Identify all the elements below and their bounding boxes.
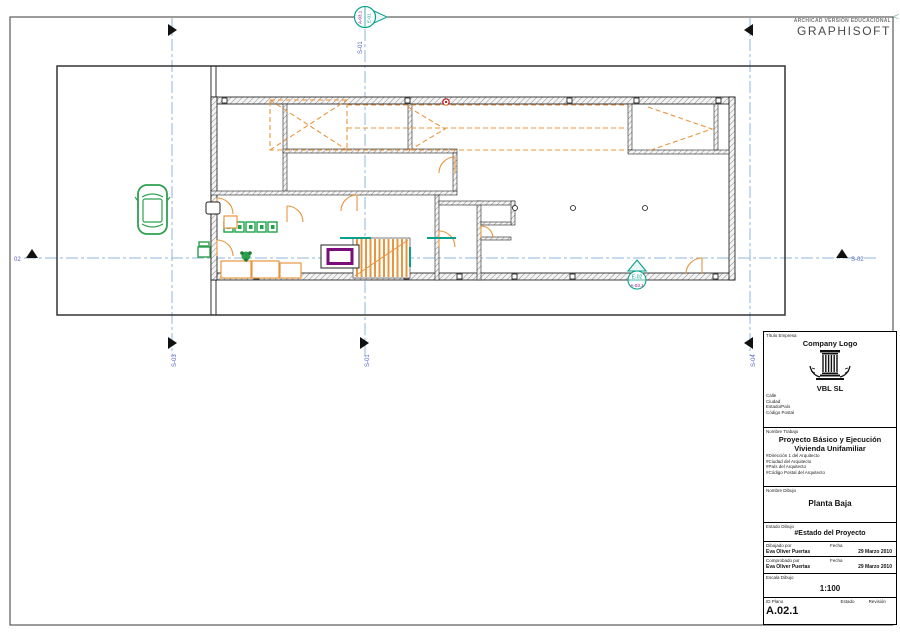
wall-exterior-left[interactable] (211, 97, 217, 280)
section-label-s04: S-04 (751, 354, 757, 367)
checked-date-value: 29 Marzo 2010 (830, 564, 894, 570)
drawn-date-value: 29 Marzo 2010 (830, 549, 894, 555)
collapse-arrow-icon[interactable]: < (893, 12, 899, 23)
door-arc[interactable] (439, 157, 455, 173)
section-arrow-icon[interactable] (744, 24, 753, 36)
drawing-id-section: ID Plano A.02.1 Estado Revisión (764, 598, 896, 624)
elevation-marker-top[interactable]: A-03.1 E-01 (355, 7, 388, 28)
alarm-symbol-icon[interactable] (443, 99, 449, 105)
section-label-s03: S-03 (172, 354, 178, 367)
section-arrow-icon[interactable] (836, 249, 848, 258)
drawn-by-value: Eva Oliver Puertas (766, 549, 830, 555)
section-arrow-icon[interactable] (26, 249, 38, 258)
project-subtitle: Vivienda Unifamiliar (766, 444, 894, 453)
sink-icon[interactable] (206, 202, 220, 214)
doors[interactable] (217, 157, 702, 274)
project-title: Proyecto Básico y Ejecución (766, 435, 894, 444)
interior-walls[interactable] (211, 104, 729, 280)
graphisoft-logo-text: GRAPHISOFT (797, 24, 891, 38)
drawing-status-value: #Estado del Proyecto (766, 530, 894, 537)
chair-icon[interactable] (198, 242, 210, 257)
overhead-dashed-lines[interactable] (270, 100, 712, 151)
exterior-walls[interactable] (211, 97, 735, 280)
drawing-name-label: Nombre Dibujo (766, 488, 894, 494)
car-icon[interactable] (135, 185, 170, 234)
title-block[interactable]: Título Empresa Company Logo VBL SL Calle… (763, 331, 897, 625)
company-logo-column-icon (808, 349, 852, 383)
project-section: Nombre Trabajo Proyecto Básico y Ejecuci… (764, 428, 896, 487)
drawing-name-section: Nombre Dibujo Planta Baja (764, 487, 896, 523)
drawing-id-value: A.02.1 (766, 605, 894, 617)
columns[interactable] (222, 98, 721, 279)
elevation-ref-left: A-03.1 (358, 10, 363, 24)
scale-label: Escala Dibujo (766, 575, 894, 581)
section-lines[interactable] (24, 18, 876, 356)
door-arc[interactable] (686, 258, 702, 274)
company-logo-title: Company Logo (766, 339, 894, 348)
overhead-arrow-icon (648, 107, 712, 151)
section-label-s02-left: 02 (14, 257, 21, 263)
checked-by-section: Comprobado por Eva Oliver Puertas Fecha … (764, 557, 896, 574)
door-arc[interactable] (287, 206, 303, 222)
section-label-s02-right: S-02 (851, 257, 864, 263)
scale-section: Escala Dibujo 1:100 (764, 574, 896, 598)
drawn-by-section: Dibujado por Eva Oliver Puertas Fecha 29… (764, 542, 896, 557)
door-arc[interactable] (217, 240, 233, 256)
section-direction-markers[interactable] (26, 24, 848, 349)
drawing-status-section: Estado Dibujo #Estado del Proyecto (764, 523, 896, 542)
wall-exterior-right[interactable] (729, 97, 735, 280)
door-arc[interactable] (341, 195, 357, 211)
company-section: Título Empresa Company Logo VBL SL Calle… (764, 332, 896, 428)
elevation-ref-top: E-02 (632, 275, 643, 281)
elevation-marker-plan[interactable]: E-02 A-03.1 (628, 260, 646, 289)
company-name: VBL SL (766, 384, 894, 393)
elevation-pennant-icon (628, 260, 646, 271)
company-address-zip: Código Postal (766, 410, 894, 416)
door-arc[interactable] (481, 226, 493, 238)
stair-void-above[interactable] (270, 100, 347, 150)
section-label-s01-top: S-01 (358, 41, 364, 54)
table-object[interactable] (321, 245, 359, 268)
estado-label: Estado (841, 599, 855, 605)
revision-label: Revisión (869, 599, 886, 605)
staircase[interactable] (353, 238, 410, 278)
plant-icon[interactable] (240, 251, 252, 262)
drawing-name: Planta Baja (766, 499, 894, 508)
elevation-ref-bottom: A-03.1 (630, 283, 644, 288)
overhead-arrow-icon (408, 107, 445, 151)
checked-by-value: Eva Oliver Puertas (766, 564, 830, 570)
sheet-border (10, 17, 893, 625)
section-label-s01-bottom: S-01 (365, 354, 371, 367)
elevation-ref-right: E-01 (367, 13, 372, 23)
scale-value: 1:100 (766, 584, 894, 593)
architect-zip: #Código Postal del Arquitecto (766, 470, 894, 476)
section-arrow-icon[interactable] (744, 337, 753, 349)
